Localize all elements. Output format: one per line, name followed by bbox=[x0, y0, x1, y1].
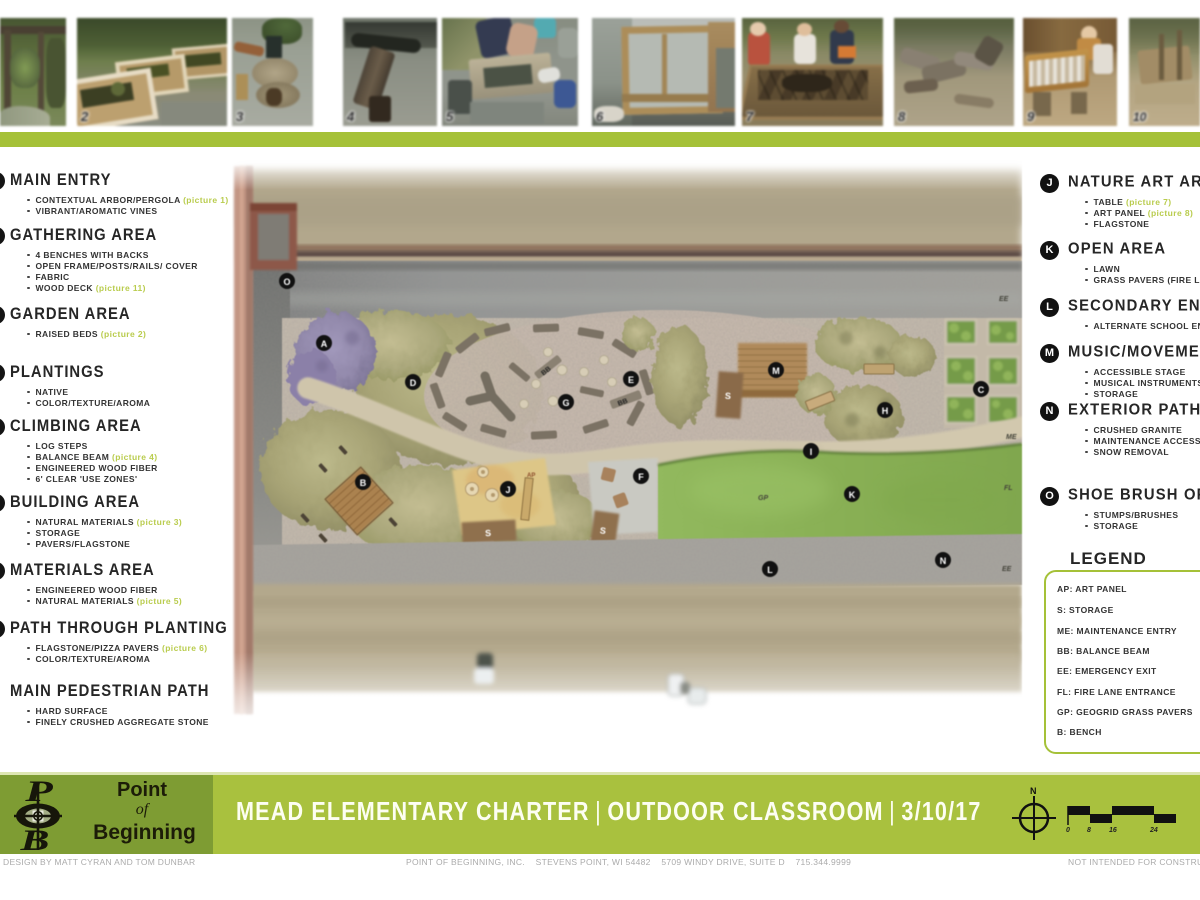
svg-text:AP: AP bbox=[527, 473, 535, 479]
svg-text:EE: EE bbox=[1002, 566, 1012, 573]
svg-text:EE: EE bbox=[999, 296, 1009, 303]
svg-text:F: F bbox=[638, 472, 644, 482]
svg-text:A: A bbox=[321, 339, 328, 349]
svg-text:B: B bbox=[19, 824, 49, 853]
svg-text:GP: GP bbox=[758, 495, 768, 502]
svg-text:K: K bbox=[849, 490, 856, 500]
svg-text:B: B bbox=[360, 478, 367, 488]
svg-text:16: 16 bbox=[1109, 827, 1117, 834]
svg-text:8: 8 bbox=[1087, 827, 1091, 834]
svg-text:L: L bbox=[767, 565, 773, 575]
svg-text:E: E bbox=[628, 375, 634, 385]
svg-text:0: 0 bbox=[1066, 827, 1070, 834]
svg-text:H: H bbox=[882, 406, 889, 416]
svg-text:M: M bbox=[772, 366, 780, 376]
svg-text:I: I bbox=[810, 447, 813, 457]
svg-text:S: S bbox=[725, 391, 732, 401]
svg-text:O: O bbox=[283, 277, 290, 287]
svg-text:24: 24 bbox=[1149, 827, 1158, 834]
svg-text:G: G bbox=[562, 398, 569, 408]
svg-text:C: C bbox=[978, 385, 985, 395]
svg-text:N: N bbox=[940, 556, 947, 566]
svg-text:J: J bbox=[505, 485, 510, 495]
svg-text:N: N bbox=[1030, 786, 1037, 796]
svg-text:S: S bbox=[485, 528, 492, 538]
svg-text:FL: FL bbox=[1004, 485, 1013, 492]
svg-text:D: D bbox=[410, 378, 417, 388]
svg-text:ME: ME bbox=[1006, 434, 1017, 441]
